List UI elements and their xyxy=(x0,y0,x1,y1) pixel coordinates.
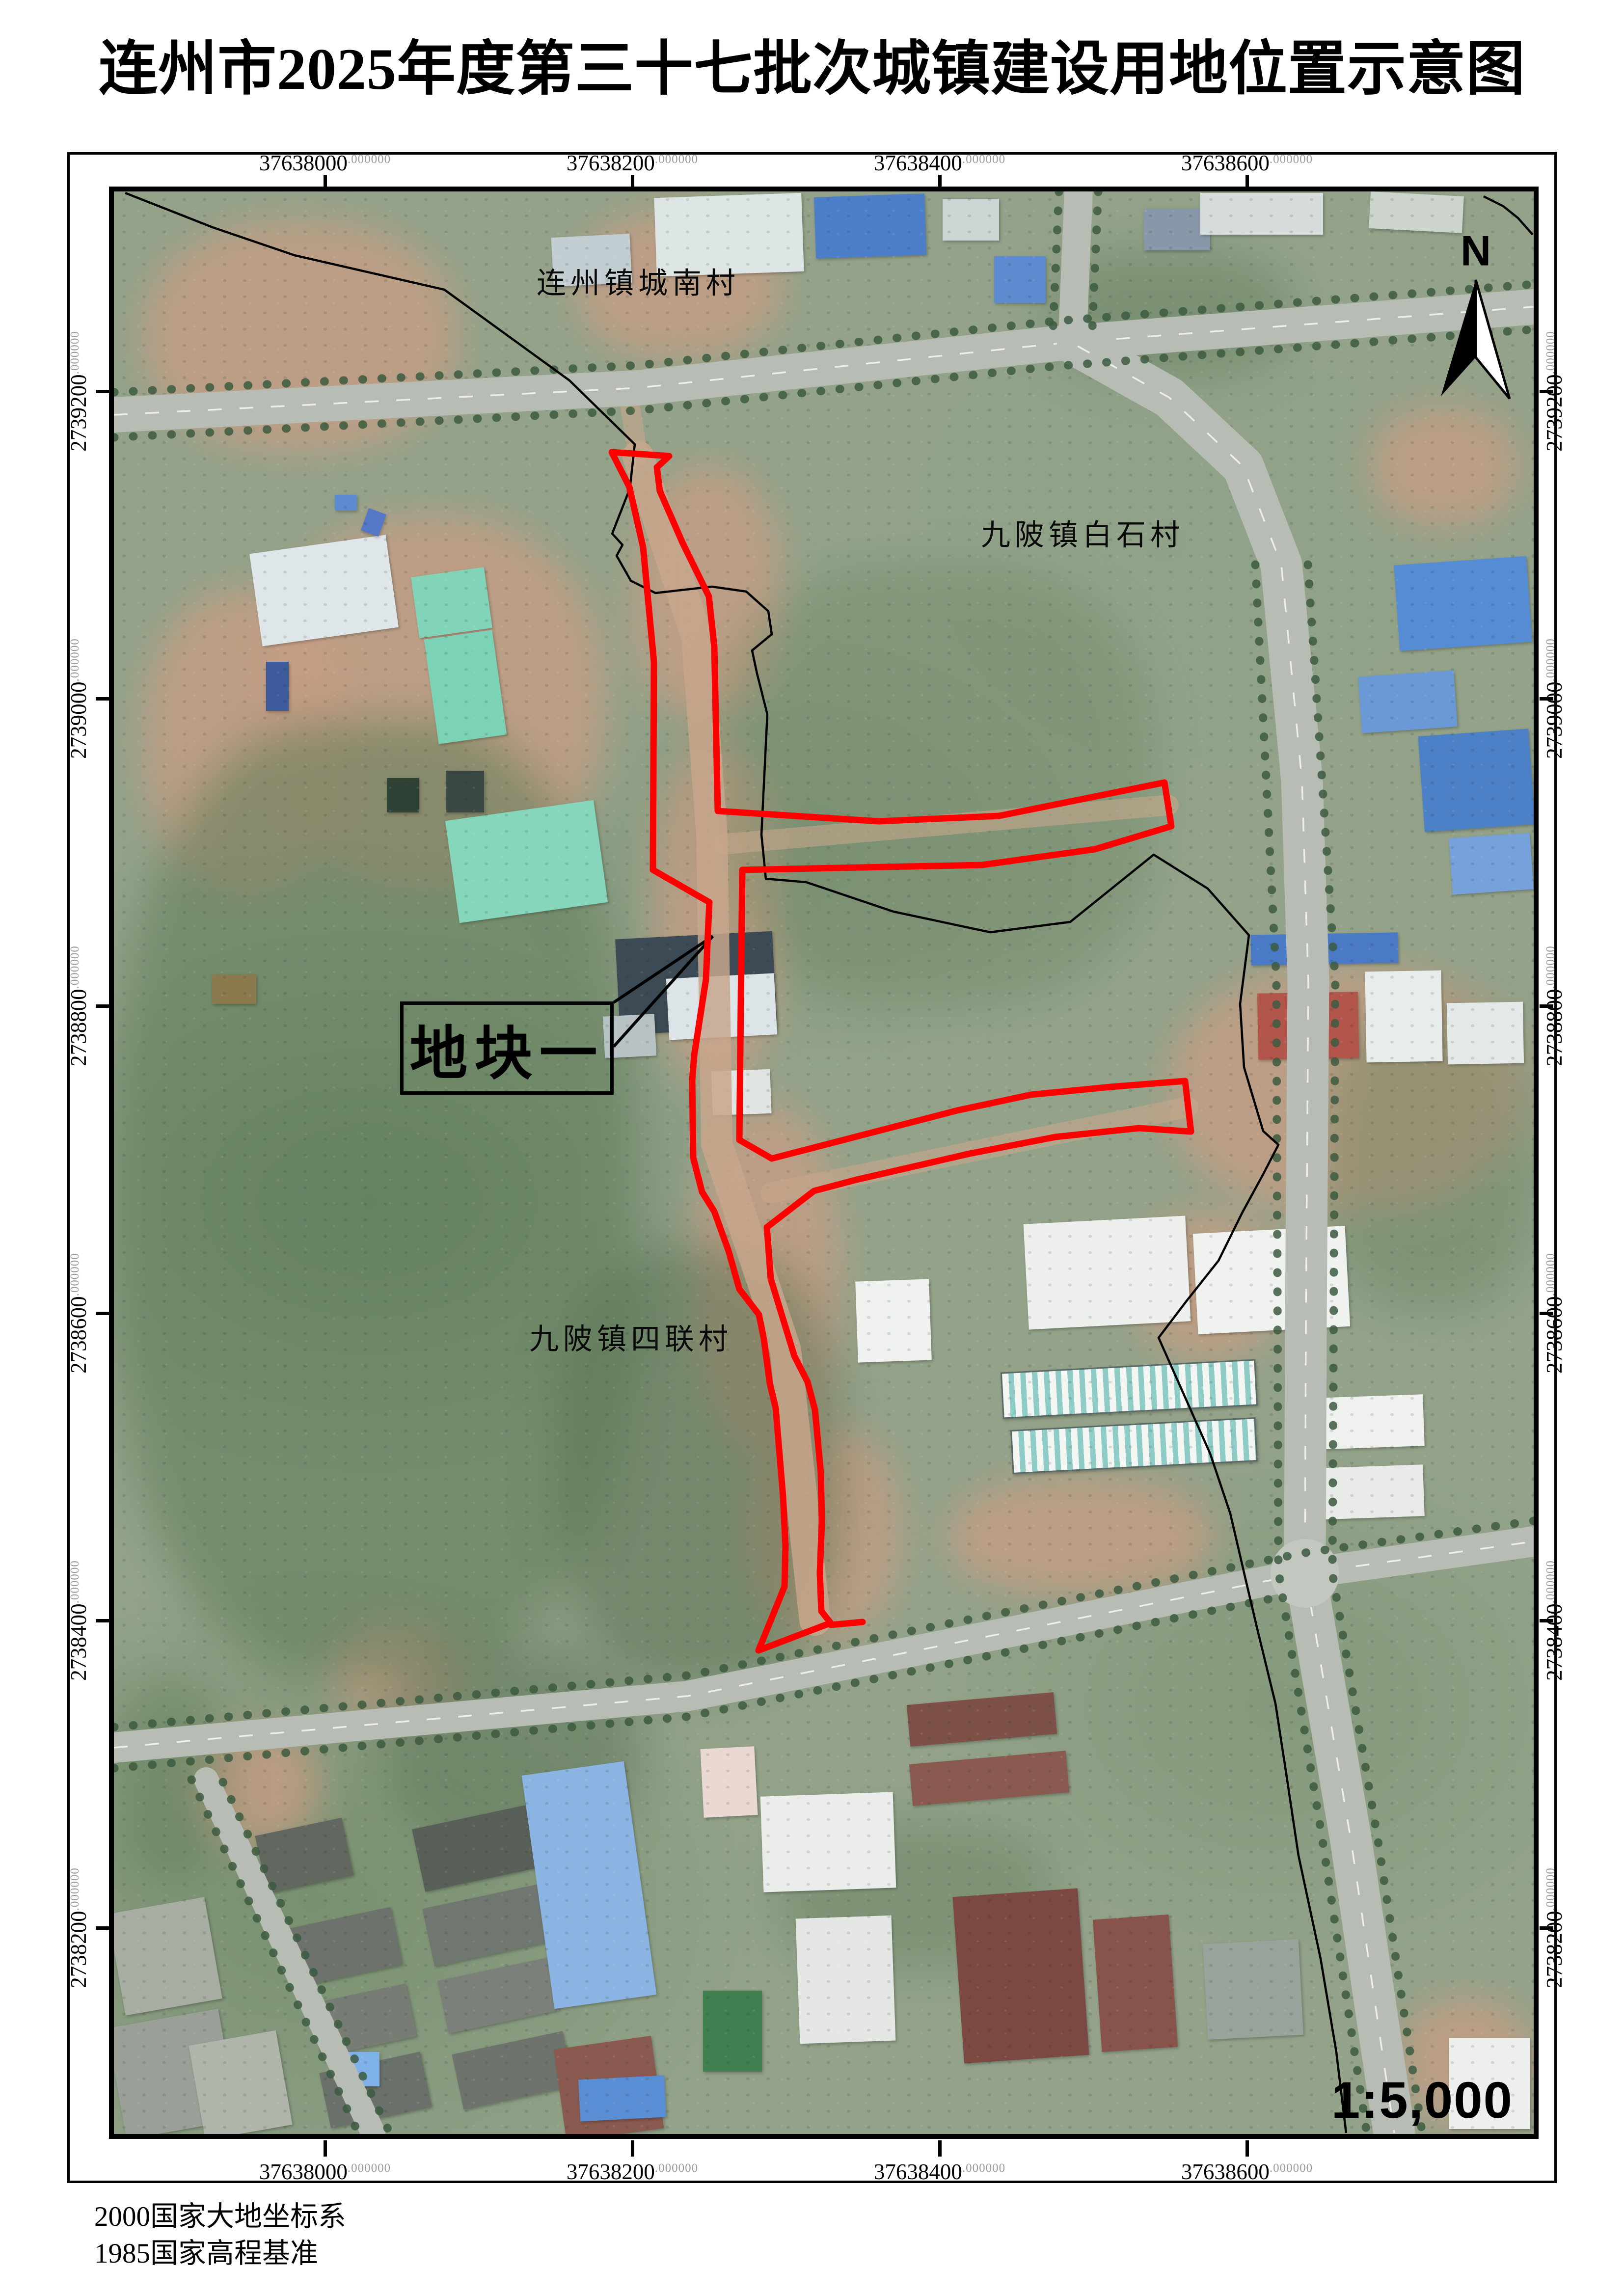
map-overlay-svg xyxy=(114,191,1534,2134)
grid-tick xyxy=(96,390,111,393)
coordinate-decimal: .000000 xyxy=(348,2161,391,2175)
road xyxy=(1078,346,1394,2133)
plot-boundary-stub xyxy=(831,1622,863,1625)
coordinate-decimal: .000000 xyxy=(1544,945,1557,989)
coordinate-decimal: .000000 xyxy=(1544,1253,1557,1296)
easting-label-bottom: 37638000.000000 xyxy=(259,2159,391,2185)
easting-label-bottom: 37638400.000000 xyxy=(874,2159,1005,2185)
coordinate-decimal: .000000 xyxy=(68,638,81,681)
grid-tick xyxy=(631,175,634,189)
coordinate-value: 2738400 xyxy=(66,1603,91,1681)
village-label-silian: 九陂镇四联村 xyxy=(529,1316,732,1358)
north-arrow-label: N xyxy=(1461,227,1491,276)
coordinate-value: 2738600 xyxy=(1542,1296,1567,1374)
coordinate-decimal: .000000 xyxy=(1544,331,1557,374)
coordinate-decimal: .000000 xyxy=(655,153,698,166)
coordinate-value: 37638200 xyxy=(567,151,655,175)
coordinate-decimal: .000000 xyxy=(1544,638,1557,681)
easting-label-top: 37638000.000000 xyxy=(259,150,391,176)
coordinate-decimal: .000000 xyxy=(1544,1867,1557,1911)
coordinate-decimal: .000000 xyxy=(68,331,81,374)
coordinate-value: 2738800 xyxy=(1542,989,1567,1066)
coordinate-value: 37638600 xyxy=(1181,151,1270,175)
grid-tick xyxy=(96,1004,111,1008)
northing-label-left: 2738400.000000 xyxy=(66,1560,91,1681)
coordinate-decimal: .000000 xyxy=(68,1560,81,1603)
roadside-trees xyxy=(1092,191,1098,339)
grid-tick xyxy=(1540,1926,1553,1930)
grid-tick xyxy=(96,1312,111,1315)
grid-tick xyxy=(1245,2140,1249,2157)
grid-tick xyxy=(1245,175,1249,189)
grid-tick xyxy=(96,1926,111,1930)
coordinate-decimal: .000000 xyxy=(68,1253,81,1296)
northing-label-left: 2739000.000000 xyxy=(66,638,91,759)
coordinate-value: 37638400 xyxy=(874,151,962,175)
road xyxy=(1072,191,1079,344)
coordinate-value: 2738200 xyxy=(66,1911,91,1988)
grid-tick xyxy=(938,175,942,189)
easting-label-top: 37638600.000000 xyxy=(1181,150,1313,176)
northing-label-left: 2738800.000000 xyxy=(66,945,91,1066)
road xyxy=(114,307,1534,415)
coordinate-value: 2739000 xyxy=(1542,681,1567,759)
datum-notes: 2000国家大地坐标系 1985国家高程基准 xyxy=(94,2198,346,2272)
dirt-track xyxy=(638,457,815,1620)
easting-label-bottom: 37638200.000000 xyxy=(567,2159,698,2185)
coordinate-value: 2739000 xyxy=(66,681,91,759)
coordinate-value: 2738600 xyxy=(66,1296,91,1374)
coordinate-value: 2739200 xyxy=(66,374,91,452)
northing-label-left: 2738600.000000 xyxy=(66,1253,91,1374)
northing-label-left: 2738200.000000 xyxy=(66,1867,91,1988)
coordinate-value: 2738400 xyxy=(1542,1603,1567,1681)
satellite-map: 连州镇城南村 九陂镇白石村 九陂镇四联村 地块一 N 1:5,000 xyxy=(109,187,1539,2139)
roadside-trees xyxy=(191,1780,358,2133)
scale-text: 1:5,000 xyxy=(1331,2071,1513,2130)
plot-one-label-box: 地块一 xyxy=(400,1001,614,1095)
village-label-chengnan: 连州镇城南村 xyxy=(537,260,740,302)
grid-tick xyxy=(938,2140,942,2157)
easting-label-top: 37638200.000000 xyxy=(567,150,698,176)
coordinate-decimal: .000000 xyxy=(1270,2161,1313,2175)
coordinate-value: 2738200 xyxy=(1542,1911,1567,1988)
coordinate-value: 2739200 xyxy=(1542,374,1567,452)
grid-tick xyxy=(631,2140,634,2157)
easting-label-bottom: 37638600.000000 xyxy=(1181,2159,1313,2185)
coordinate-decimal: .000000 xyxy=(655,2161,698,2175)
coordinate-value: 37638200 xyxy=(567,2160,655,2184)
coordinate-decimal: .000000 xyxy=(1544,1560,1557,1603)
plot-one-label: 地块一 xyxy=(409,1006,604,1090)
coordinate-decimal: .000000 xyxy=(962,153,1005,166)
coordinate-decimal: .000000 xyxy=(348,153,391,166)
grid-tick xyxy=(96,697,111,701)
grid-tick xyxy=(324,2140,327,2157)
coordinate-value: 2738800 xyxy=(66,989,91,1066)
dirt-track xyxy=(722,805,1168,844)
coordinate-value: 37638000 xyxy=(259,151,348,175)
coordinate-value: 37638600 xyxy=(1181,2160,1270,2184)
grid-tick xyxy=(1540,1312,1553,1315)
roadside-trees xyxy=(1053,191,1059,339)
coordinate-decimal: .000000 xyxy=(68,945,81,989)
roadside-trees xyxy=(223,1782,390,2133)
grid-tick xyxy=(1540,697,1553,701)
village-label-baishi: 九陂镇白石村 xyxy=(981,512,1184,554)
coordinate-value: 37638000 xyxy=(259,2160,348,2184)
geodetic-datum-note: 2000国家大地坐标系 xyxy=(94,2198,346,2235)
coordinate-decimal: .000000 xyxy=(962,2161,1005,2175)
coordinate-decimal: .000000 xyxy=(1270,153,1313,166)
coordinate-decimal: .000000 xyxy=(68,1867,81,1911)
grid-tick xyxy=(324,175,327,189)
road xyxy=(206,1780,373,2133)
coordinate-value: 37638400 xyxy=(874,2160,962,2184)
height-datum-note: 1985国家高程基准 xyxy=(94,2235,346,2272)
map-sheet: 连州市2025年度第三十七批次城镇建设用地位置示意图 连州镇城南村 九陂镇白石村… xyxy=(0,0,1624,2295)
grid-tick xyxy=(96,1619,111,1622)
grid-tick xyxy=(1540,1004,1553,1008)
grid-tick xyxy=(1540,390,1553,393)
grid-tick xyxy=(1540,1619,1553,1622)
northing-label-left: 2739200.000000 xyxy=(66,331,91,452)
page-title: 连州市2025年度第三十七批次城镇建设用地位置示意图 xyxy=(0,21,1624,106)
easting-label-top: 37638400.000000 xyxy=(874,150,1005,176)
